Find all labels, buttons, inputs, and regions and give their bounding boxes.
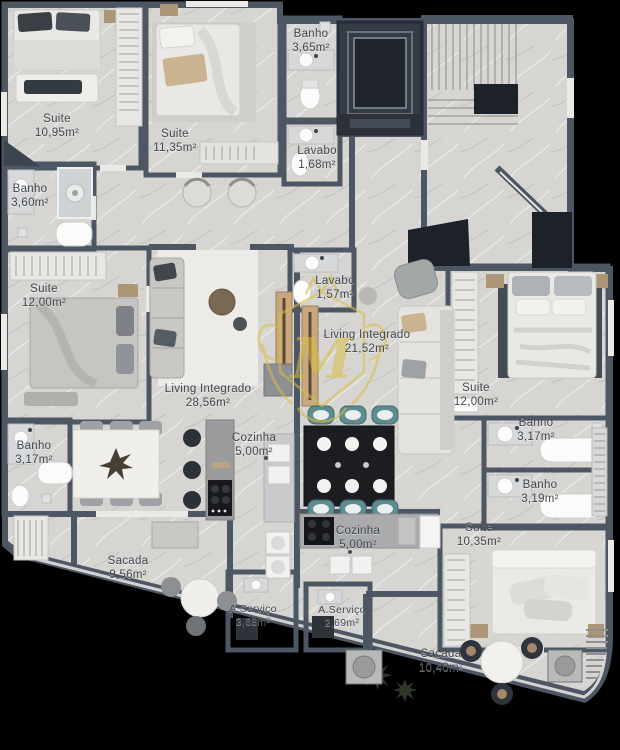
room-label-lavabo-157: Lavabo1,57m² — [315, 274, 355, 302]
floorplan-image: M Suite10,95m² Suite11,35m² Banho3,65m² … — [0, 0, 620, 750]
room-area: 10,40m² — [419, 661, 463, 675]
room-label-aservico-368: A.Serviço3,68m² — [229, 603, 277, 629]
room-label-living-2856: Living Integrado28,56m² — [165, 382, 252, 410]
room-area: 9,56m² — [108, 568, 149, 582]
room-label-cozinha-right: Cozinha5,00m² — [336, 524, 380, 552]
room-name: Sacada — [108, 554, 149, 568]
room-area: 3,17m² — [15, 453, 53, 467]
room-name: Suite — [22, 282, 66, 296]
room-label-banho-365: Banho3,65m² — [292, 27, 330, 55]
room-area: 1,57m² — [315, 288, 355, 302]
room-area: 5,00m² — [232, 445, 276, 459]
room-area: 3,17m² — [517, 430, 555, 444]
room-area: 12,00m² — [454, 395, 498, 409]
room-label-suite-1035: Suite10,35m² — [457, 521, 501, 549]
room-name: Cozinha — [336, 524, 380, 538]
plant — [393, 679, 417, 702]
elevator — [338, 22, 422, 134]
room-area: 28,56m² — [165, 396, 252, 410]
room-name: Suite — [454, 381, 498, 395]
room-label-suite-1200R: Suite12,00m² — [454, 381, 498, 409]
room-name: Sacada — [419, 647, 463, 661]
room-name: Banho — [15, 439, 53, 453]
room-area: 1,68m² — [297, 158, 337, 172]
room-area: 11,35m² — [153, 141, 196, 155]
room-name: A.Serviço — [229, 603, 277, 616]
room-label-aservico-269: A.Serviço2,69m² — [318, 604, 366, 630]
room-name: Suite — [35, 112, 79, 126]
room-label-living-2152: Living Integrado21,52m² — [324, 328, 411, 356]
room-label-cozinha-left: Cozinha5,00m² — [232, 431, 276, 459]
floorplan-graphic: M — [0, 0, 620, 750]
room-name: Banho — [11, 182, 49, 196]
room-name: Banho — [292, 27, 330, 41]
room-label-suite-1135: Suite11,35m² — [153, 127, 196, 155]
room-name: Banho — [521, 478, 559, 492]
room-area: 3,19m² — [521, 492, 559, 506]
room-label-banho-317R: Banho3,17m² — [517, 416, 555, 444]
room-name: Suite — [153, 127, 196, 141]
room-name: Suite — [457, 521, 501, 535]
dining-left — [73, 421, 162, 506]
stair-void — [474, 84, 518, 114]
right-louver — [592, 428, 607, 516]
room-name: Banho — [517, 416, 555, 430]
room-name: Living Integrado — [324, 328, 411, 342]
room-label-sacada-956: Sacada9,56m² — [108, 554, 149, 582]
room-label-banho-360: Banho3,60m² — [11, 182, 49, 210]
room-area: 21,52m² — [324, 342, 411, 356]
room-label-lavabo-168: Lavabo1,68m² — [297, 144, 337, 172]
room-label-banho-319R: Banho3,19m² — [521, 478, 559, 506]
dining-right — [304, 406, 398, 518]
room-area: 3,60m² — [11, 196, 49, 210]
room-area: 10,35m² — [457, 535, 501, 549]
suite-1035-furniture — [444, 546, 604, 646]
room-area: 3,68m² — [229, 616, 277, 629]
room-name: Lavabo — [297, 144, 337, 158]
room-label-banho-317L: Banho3,17m² — [15, 439, 53, 467]
room-label-sacada-1040: Sacada10,40m² — [419, 647, 463, 675]
room-area: 10,95m² — [35, 126, 79, 140]
room-label-suite-1095: Suite10,95m² — [35, 112, 79, 140]
room-area: 5,00m² — [336, 538, 380, 552]
room-name: A.Serviço — [318, 604, 366, 617]
room-area: 2,69m² — [318, 617, 366, 630]
room-area: 12,00m² — [22, 296, 66, 310]
room-name: Lavabo — [315, 274, 355, 288]
room-name: Cozinha — [232, 431, 276, 445]
room-area: 3,65m² — [292, 41, 330, 55]
room-label-suite-1200L: Suite12,00m² — [22, 282, 66, 310]
room-name: Living Integrado — [165, 382, 252, 396]
